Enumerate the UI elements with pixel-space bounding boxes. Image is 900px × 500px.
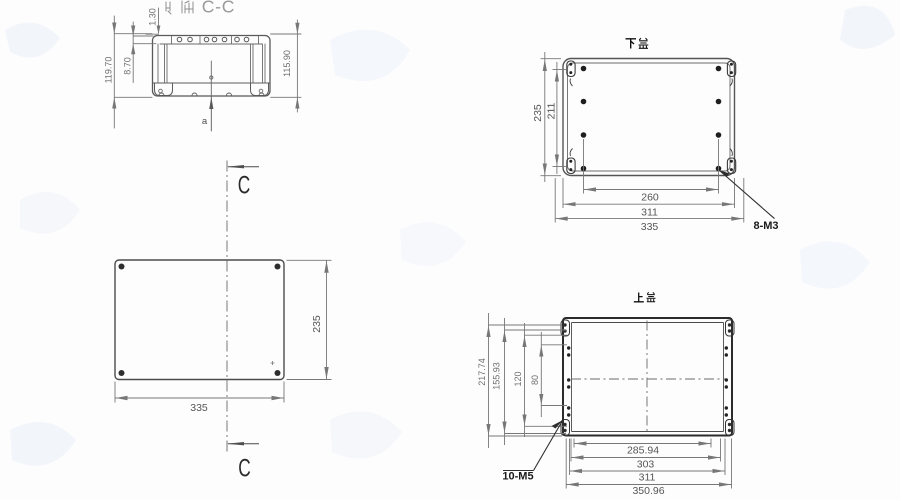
svg-text:217.74: 217.74	[477, 358, 487, 386]
svg-text:8.70: 8.70	[123, 57, 133, 75]
svg-text:303: 303	[637, 459, 655, 471]
svg-text:260: 260	[641, 192, 659, 204]
svg-text:10-M5: 10-M5	[502, 471, 533, 483]
svg-text:a: a	[202, 116, 208, 127]
svg-text:115.90: 115.90	[282, 50, 292, 77]
svg-text:285.94: 285.94	[627, 445, 659, 457]
svg-text:335: 335	[641, 221, 659, 233]
svg-text:119.70: 119.70	[104, 57, 114, 84]
svg-text:311: 311	[639, 472, 656, 484]
svg-text:235: 235	[311, 315, 323, 333]
svg-text:350.96: 350.96	[632, 485, 664, 497]
svg-text:1.30: 1.30	[148, 8, 158, 26]
svg-text:C: C	[238, 455, 251, 483]
svg-text:8-M3: 8-M3	[753, 220, 778, 232]
svg-text:311: 311	[641, 207, 658, 219]
svg-text:235: 235	[532, 104, 544, 122]
svg-text:155.93: 155.93	[492, 362, 502, 390]
svg-text:C: C	[238, 172, 251, 200]
svg-text:120: 120	[513, 371, 523, 386]
svg-text:C-C: C-C	[202, 0, 236, 17]
svg-text:80: 80	[530, 375, 540, 385]
svg-text:335: 335	[190, 402, 208, 414]
svg-text:211: 211	[546, 102, 558, 119]
